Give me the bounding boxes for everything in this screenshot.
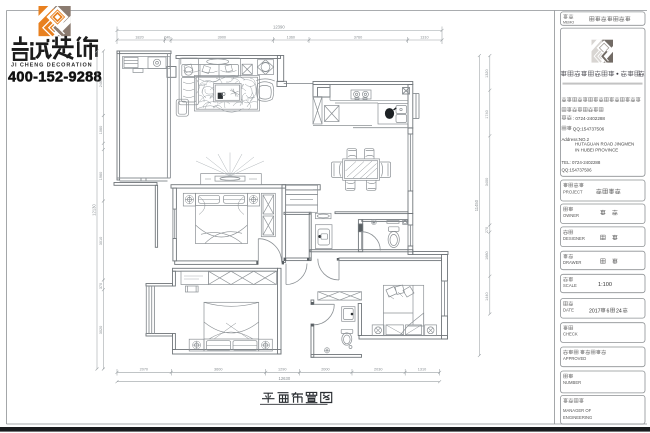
svg-text:12390: 12390 [273, 25, 285, 30]
svg-text:MEMO: MEMO [563, 21, 574, 25]
svg-text:CHECK: CHECK [563, 332, 578, 337]
svg-text:2000: 2000 [321, 368, 329, 372]
svg-text:HUTAGUAN ROAD JINGMEN: HUTAGUAN ROAD JINGMEN [575, 142, 634, 147]
svg-text:DESIGNER: DESIGNER [563, 236, 585, 241]
svg-text:DATE: DATE [563, 307, 574, 312]
svg-text:1320: 1320 [485, 69, 489, 77]
svg-text:11450: 11450 [474, 199, 479, 211]
svg-text:1440: 1440 [485, 292, 489, 300]
svg-text:1820: 1820 [135, 36, 143, 40]
svg-text:3010: 3010 [99, 237, 103, 245]
svg-text:JI CHENG DECORATION: JI CHENG DECORATION [11, 63, 93, 69]
svg-text:370: 370 [99, 283, 103, 289]
svg-text:1310: 1310 [420, 36, 428, 40]
svg-text:APPROVED: APPROVED [563, 356, 586, 361]
svg-text:1740: 1740 [485, 110, 489, 118]
svg-text:1:100: 1:100 [598, 282, 612, 288]
svg-text:2460: 2460 [99, 79, 103, 87]
svg-text:: 0724-2402288: : 0724-2402288 [573, 116, 606, 121]
svg-text:3400: 3400 [485, 178, 489, 186]
svg-text:TEL: 0724-2402288: TEL: 0724-2402288 [562, 160, 601, 165]
svg-text:SCALE: SCALE [563, 283, 577, 288]
svg-text:270: 270 [485, 227, 489, 233]
svg-text:3020: 3020 [99, 326, 103, 334]
svg-text:2017: 2017 [589, 309, 601, 315]
svg-text:240: 240 [164, 36, 170, 40]
svg-text:24: 24 [616, 309, 622, 315]
svg-text:3900: 3900 [218, 36, 226, 40]
svg-text:3600: 3600 [214, 368, 222, 372]
svg-text:12630: 12630 [279, 376, 291, 381]
svg-text:ENGINEERING: ENGINEERING [563, 415, 592, 420]
svg-text:1060: 1060 [99, 126, 103, 134]
svg-text:IN HUBEI PROVINCE: IN HUBEI PROVINCE [575, 148, 618, 153]
svg-text:QQ:154737506: QQ:154737506 [562, 167, 593, 172]
svg-text:NUMBER: NUMBER [563, 380, 581, 385]
svg-text:6: 6 [607, 309, 610, 315]
svg-text:1360: 1360 [287, 36, 295, 40]
svg-text:1680: 1680 [485, 251, 489, 259]
svg-text:OWNER: OWNER [563, 213, 579, 218]
svg-text:QQ:154737506: QQ:154737506 [573, 126, 605, 131]
svg-text:MANAGER OF: MANAGER OF [563, 408, 592, 413]
svg-text:2070: 2070 [140, 368, 148, 372]
svg-text:3760: 3760 [354, 36, 362, 40]
svg-text:12130: 12130 [91, 204, 96, 216]
svg-text:400-152-9288: 400-152-9288 [8, 70, 102, 86]
svg-text:1290: 1290 [278, 368, 286, 372]
svg-text:PROJECT: PROJECT [563, 190, 583, 195]
svg-text:1310: 1310 [418, 368, 426, 372]
svg-text:2030: 2030 [374, 368, 382, 372]
svg-text:DRAWER: DRAWER [563, 260, 581, 265]
svg-text:1960: 1960 [99, 172, 103, 180]
